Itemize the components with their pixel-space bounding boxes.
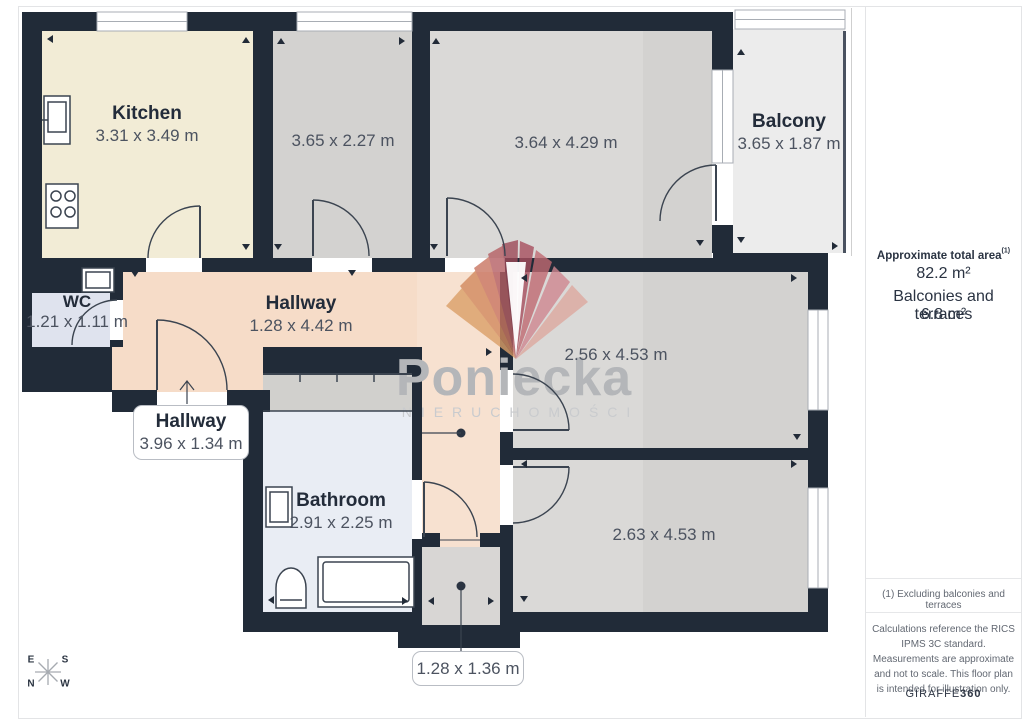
compass-e: E [28,655,35,666]
compass-w: W [60,679,69,690]
hallway2-callout: Hallway 3.96 x 1.34 m [133,405,249,460]
compass-n: N [27,679,34,690]
wc-label: WC 1.21 x 1.11 m [26,292,128,332]
room-c-label: 2.56 x 4.53 m [564,344,667,365]
kitchen-label: Kitchen 3.31 x 3.49 m [95,103,198,146]
total-area-heading: Approximate total area(1) [866,246,1021,264]
bathroom-label: Bathroom 2.91 x 2.25 m [289,490,392,533]
room-a-label: 3.65 x 2.27 m [291,130,394,151]
vestibule-callout: 1.28 x 1.36 m [412,651,524,686]
watermark-subtitle: NIERUCHOMOŚCI [393,404,640,420]
total-area-value: 82.2 m² [866,265,1021,283]
floor-plan-page: Poniecka NIERUCHOMOŚCI [0,0,1024,724]
hallway-label: Hallway 1.28 x 4.42 m [249,293,352,336]
compass-s: S [62,655,69,666]
giraffe360-logo: GIRAFFE360 [866,688,1021,700]
room-b-label: 3.64 x 4.29 m [514,132,617,153]
balcony-label: Balcony 3.65 x 1.87 m [737,111,840,154]
balconies-value: 6.8 m² [866,306,1021,324]
disclaimer-text: Calculations reference the RICS IPMS 3C … [870,622,1017,697]
footnote-text: (1) Excluding balconies and terraces [866,589,1021,611]
footnote-marker: (1) [1002,248,1011,255]
room-d-label: 2.63 x 4.53 m [612,524,715,545]
